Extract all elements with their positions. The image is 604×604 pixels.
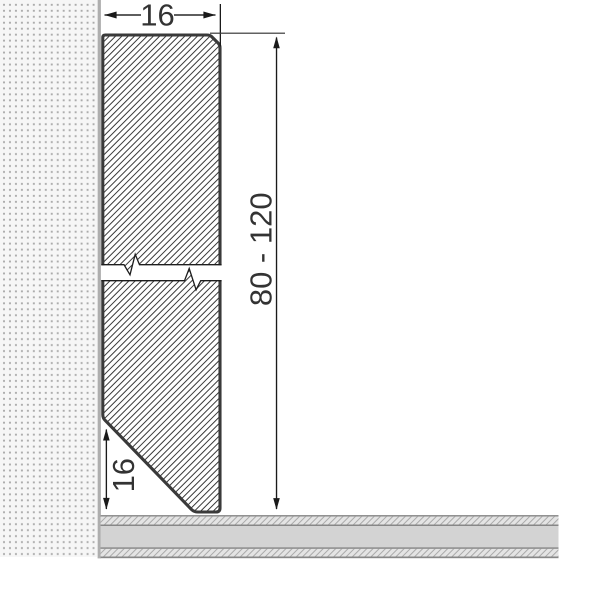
svg-text:80 - 120: 80 - 120	[244, 192, 279, 306]
svg-text:16: 16	[140, 0, 174, 33]
svg-text:16: 16	[106, 458, 141, 492]
